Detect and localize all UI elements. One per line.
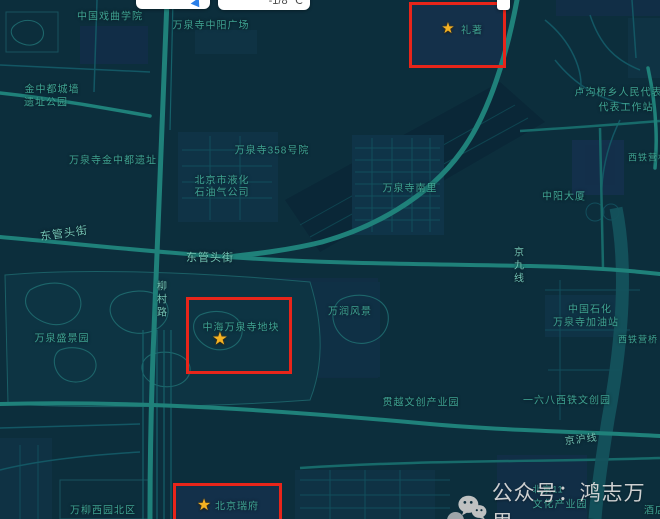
- map-label: 万泉盛景园: [35, 330, 90, 345]
- map-label: 万润风景: [328, 303, 372, 318]
- map-label: 卢沟桥乡人民代表大: [575, 84, 660, 99]
- temperature-widget: -1/8 ℃: [218, 0, 310, 10]
- watermark-text: 公众号：鸿志万里: [492, 477, 660, 519]
- watermark: 公众号：鸿志万里: [458, 477, 660, 519]
- map-label: 万柳西园北区: [70, 502, 136, 517]
- map-label: 万泉寺加油站: [553, 314, 619, 329]
- map-label: 万泉寺金中都遗址: [69, 152, 157, 167]
- map-label: 中阳大厦: [542, 188, 586, 203]
- star-icon: ★: [197, 495, 211, 515]
- marker-label: 礼著: [461, 22, 483, 37]
- map-canvas[interactable]: [0, 0, 660, 519]
- map-label: 遗址公园: [24, 94, 68, 109]
- highlight-box: [186, 297, 292, 374]
- star-icon: ★: [441, 19, 454, 37]
- map-label: 万泉寺南里: [383, 180, 438, 195]
- corner-widget: [497, 0, 510, 10]
- map-label: 贯越文创产业园: [383, 394, 460, 409]
- map-label: 西铁营桥: [618, 333, 658, 346]
- map-label: 东管头街: [186, 249, 234, 265]
- map-screenshot: 中国戏曲学院万泉寺中阳广场金中都城墙遗址公园卢沟桥乡人民代表大代表工作站万泉寺3…: [0, 0, 660, 519]
- map-label: 万泉寺中阳广场: [173, 17, 250, 32]
- highlight-box: [409, 2, 506, 68]
- map-label: 柳村路: [153, 281, 168, 320]
- marker-label: 中海万泉寺地块: [203, 319, 280, 334]
- map-label: 京九线: [510, 247, 525, 286]
- map-label: 代表工作站: [599, 99, 654, 114]
- map-label: 万泉寺358号院: [235, 142, 310, 157]
- temperature-value: -1/8 ℃: [269, 0, 303, 10]
- map-label: 一六八西铁文创园: [523, 392, 611, 407]
- navigation-arrow-icon: [191, 0, 204, 10]
- map-label: 西铁营村: [628, 151, 660, 164]
- map-label: 石油气公司: [195, 184, 250, 199]
- map-locate-widget[interactable]: [136, 0, 210, 9]
- marker-label: 北京瑞府: [215, 498, 259, 513]
- map-label: 中国戏曲学院: [77, 8, 143, 23]
